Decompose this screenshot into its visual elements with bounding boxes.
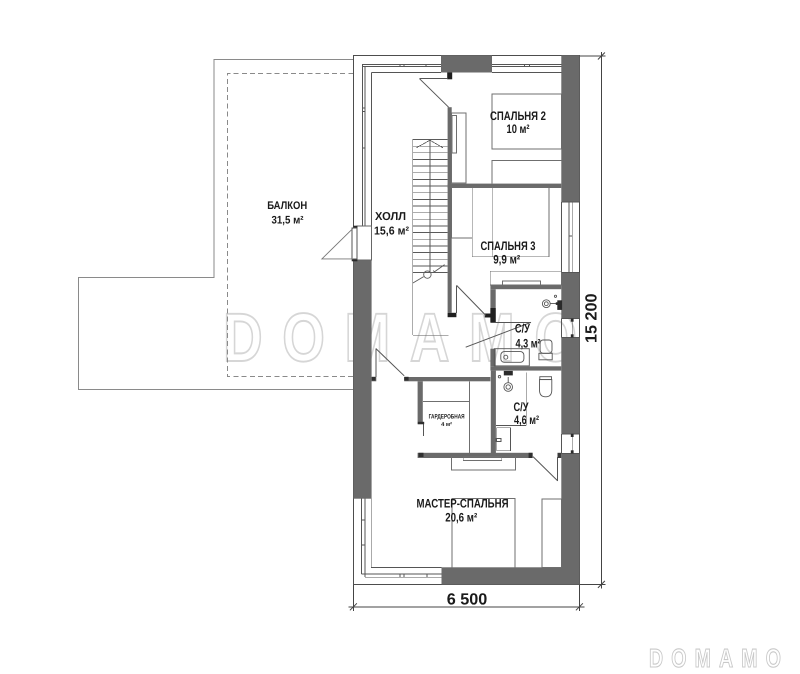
svg-text:БАЛКОН: БАЛКОН <box>267 200 307 212</box>
svg-text:6 500: 6 500 <box>447 590 488 608</box>
svg-text:С/У: С/У <box>514 400 529 414</box>
svg-text:4 м²: 4 м² <box>441 422 452 428</box>
svg-text:15 200: 15 200 <box>582 293 600 343</box>
svg-text:4,6 м²: 4,6 м² <box>514 413 539 427</box>
svg-text:10 м²: 10 м² <box>507 122 530 136</box>
svg-text:ХОЛЛ: ХОЛЛ <box>375 211 406 223</box>
svg-text:15,6 м²: 15,6 м² <box>374 226 409 238</box>
svg-text:СПАЛЬНЯ 3: СПАЛЬНЯ 3 <box>481 239 536 253</box>
svg-text:С/У: С/У <box>515 322 530 336</box>
svg-text:МАСТЕР-СПАЛЬНЯ: МАСТЕР-СПАЛЬНЯ <box>417 497 509 511</box>
svg-text:DOMAMO: DOMAMO <box>649 643 789 673</box>
svg-text:20,6 м²: 20,6 м² <box>445 511 477 525</box>
svg-text:DOMAMO: DOMAMO <box>223 299 597 376</box>
svg-text:31,5 м²: 31,5 м² <box>272 215 304 227</box>
svg-text:4,3 м²: 4,3 м² <box>516 337 541 351</box>
svg-text:ГАРДЕРОБНАЯ: ГАРДЕРОБНАЯ <box>429 413 465 420</box>
svg-text:9,9 м²: 9,9 м² <box>493 253 520 267</box>
